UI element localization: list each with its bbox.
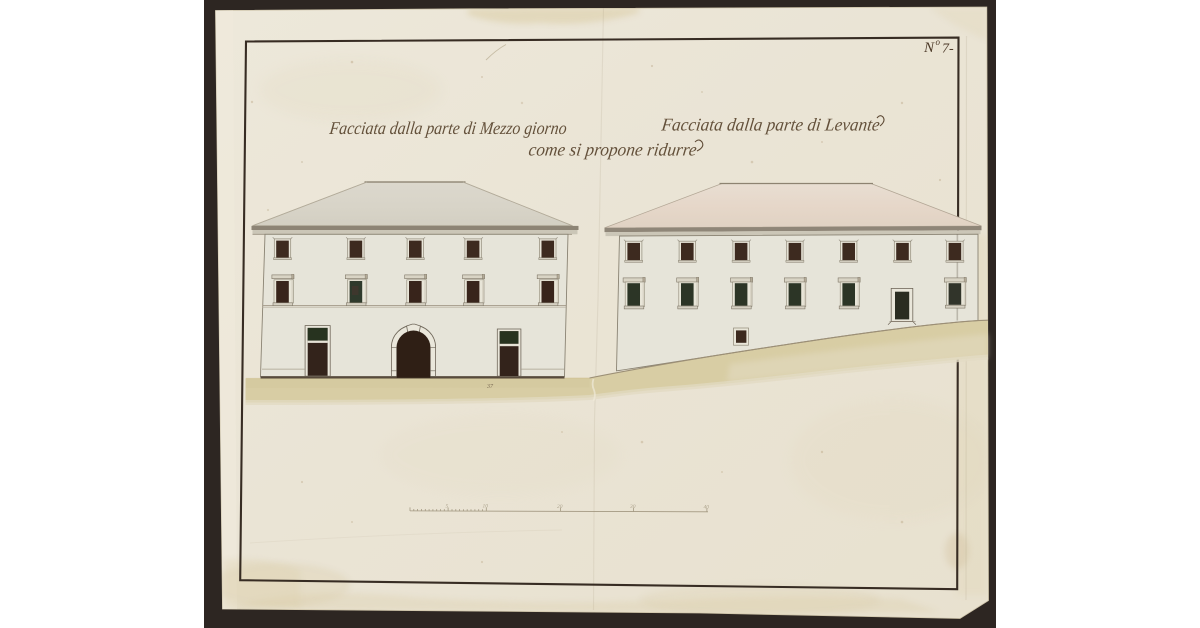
svg-text:30: 30 xyxy=(629,504,636,510)
svg-text:7-: 7- xyxy=(942,42,954,57)
svg-text:37: 37 xyxy=(486,384,494,390)
svg-text:20: 20 xyxy=(557,504,563,510)
svg-text:N: N xyxy=(923,40,935,56)
svg-text:come si propone ridurre: come si propone ridurre xyxy=(528,140,698,160)
svg-text:40: 40 xyxy=(704,504,710,511)
svg-text:10: 10 xyxy=(483,504,489,510)
svg-text:Facciata dalla parte di Mezzo: Facciata dalla parte di Mezzo giorno xyxy=(328,118,568,138)
svg-text:Facciata dalla parte di Levant: Facciata dalla parte di Levante xyxy=(660,115,881,135)
svg-text:5: 5 xyxy=(446,504,449,510)
svg-text:o: o xyxy=(936,37,941,47)
